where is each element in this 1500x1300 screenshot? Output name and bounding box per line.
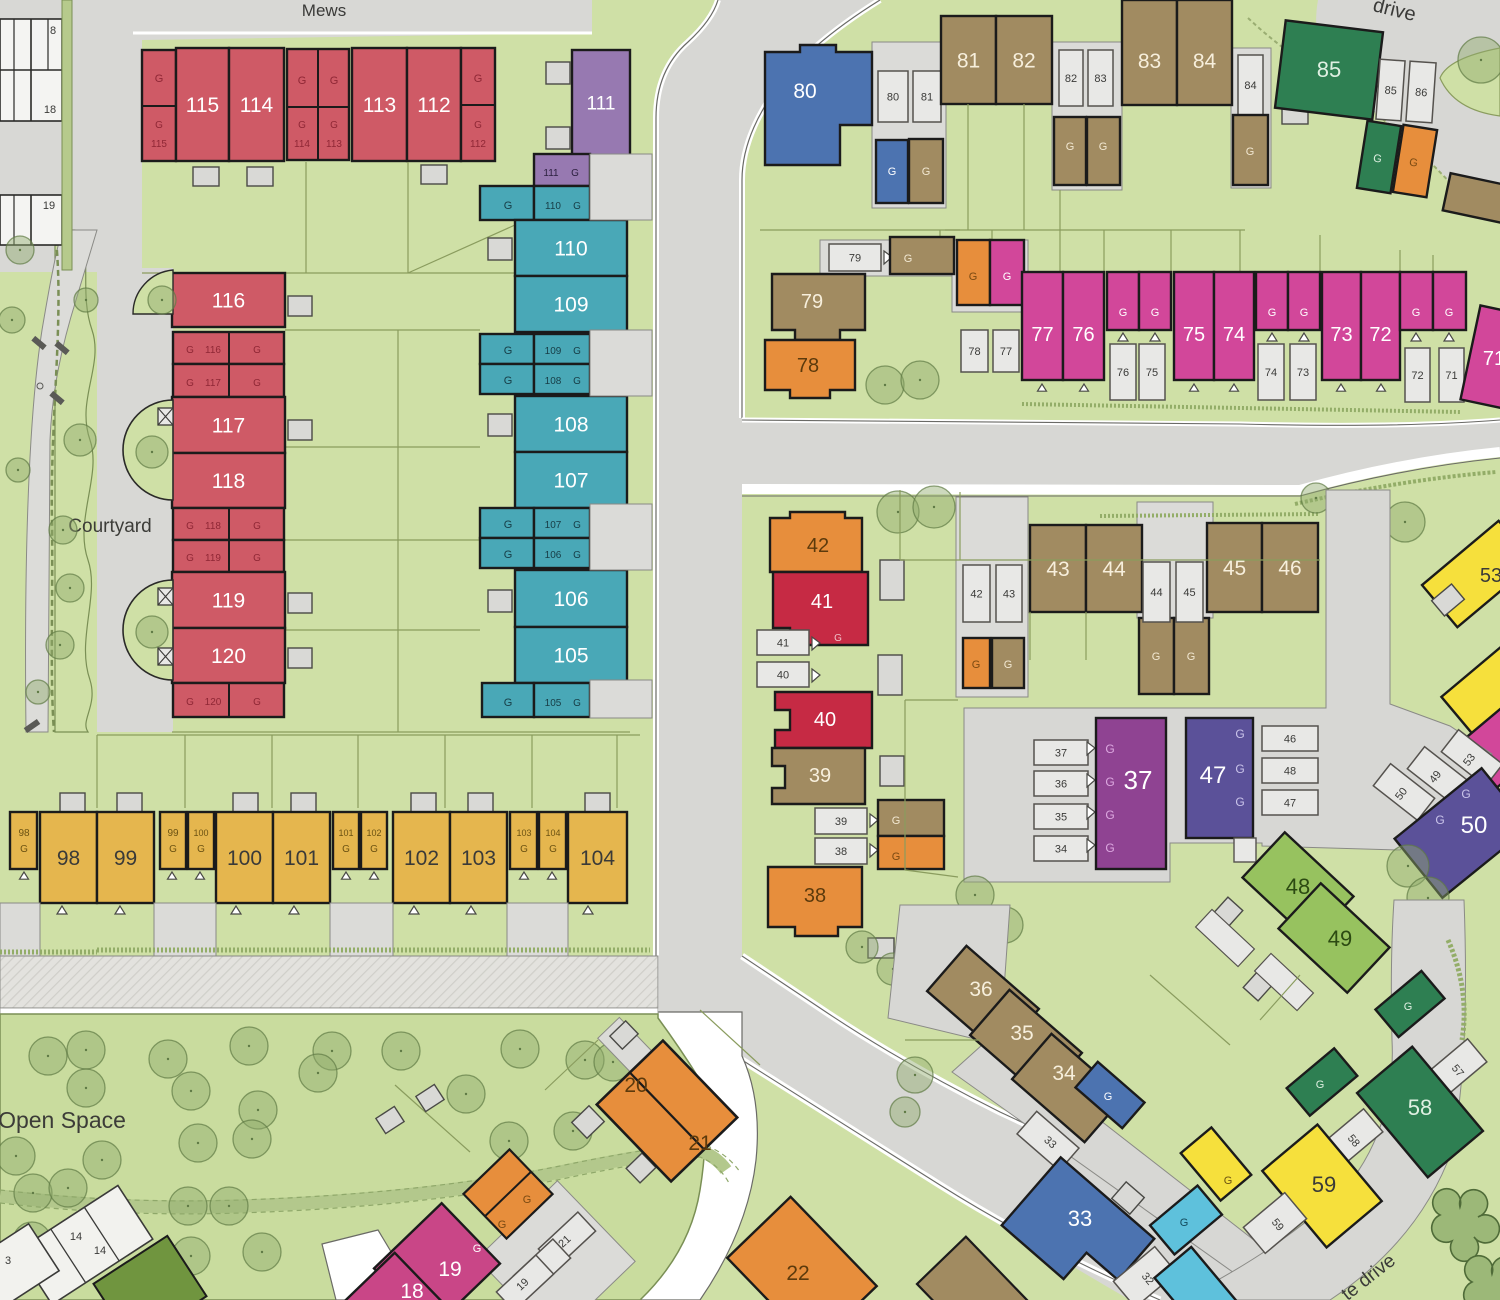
svg-text:103: 103 [516, 828, 531, 838]
svg-text:G: G [474, 73, 483, 85]
svg-text:21: 21 [688, 1132, 711, 1155]
svg-text:98: 98 [57, 847, 80, 870]
svg-text:G: G [197, 844, 205, 855]
svg-text:G: G [888, 166, 897, 178]
svg-text:G: G [1461, 787, 1470, 801]
svg-text:G: G [1004, 659, 1013, 671]
svg-text:113: 113 [363, 94, 396, 117]
svg-text:G: G [1235, 795, 1244, 809]
svg-text:77: 77 [1000, 346, 1012, 358]
svg-text:G: G [1105, 841, 1114, 855]
svg-text:G: G [969, 271, 978, 283]
svg-text:82: 82 [1065, 73, 1077, 85]
svg-text:G: G [1224, 1175, 1233, 1187]
svg-text:G: G [573, 376, 581, 387]
svg-text:72: 72 [1411, 370, 1423, 382]
svg-text:G: G [1152, 651, 1161, 663]
svg-text:G: G [298, 75, 307, 87]
svg-text:G: G [1066, 141, 1075, 153]
svg-text:102: 102 [366, 828, 381, 838]
svg-text:G: G [504, 375, 513, 387]
svg-text:G: G [330, 120, 338, 131]
svg-text:73: 73 [1297, 367, 1309, 379]
svg-text:G: G [549, 844, 557, 855]
svg-text:99: 99 [114, 847, 137, 870]
svg-text:G: G [1105, 775, 1114, 789]
svg-text:78: 78 [797, 355, 819, 377]
svg-text:22: 22 [786, 1262, 809, 1285]
svg-text:G: G [573, 550, 581, 561]
svg-text:105: 105 [553, 645, 588, 668]
svg-text:35: 35 [1055, 811, 1067, 823]
svg-text:G: G [573, 201, 581, 212]
svg-text:G: G [1235, 762, 1244, 776]
svg-text:73: 73 [1330, 324, 1352, 346]
svg-text:18: 18 [400, 1280, 423, 1300]
svg-text:38: 38 [835, 846, 847, 858]
svg-text:43: 43 [1003, 588, 1015, 600]
svg-text:39: 39 [835, 816, 847, 828]
svg-text:G: G [370, 844, 378, 855]
svg-text:G: G [504, 345, 513, 357]
svg-text:G: G [1445, 307, 1454, 319]
svg-text:100: 100 [227, 847, 262, 870]
svg-text:37: 37 [1124, 765, 1153, 795]
svg-text:G: G [1268, 307, 1277, 319]
svg-text:19: 19 [438, 1258, 461, 1281]
svg-text:38: 38 [804, 885, 826, 907]
svg-text:G: G [504, 200, 513, 212]
svg-text:85: 85 [1384, 85, 1397, 98]
svg-text:G: G [1151, 307, 1160, 319]
svg-text:G: G [20, 844, 28, 855]
svg-text:G: G [330, 75, 339, 87]
svg-text:98: 98 [18, 828, 30, 839]
svg-text:112: 112 [417, 94, 450, 117]
svg-text:G: G [186, 378, 194, 389]
svg-text:G: G [504, 549, 513, 561]
svg-text:75: 75 [1146, 367, 1158, 379]
svg-text:G: G [1180, 1217, 1189, 1229]
svg-text:G: G [573, 520, 581, 531]
svg-text:G: G [892, 851, 901, 863]
svg-text:79: 79 [849, 252, 861, 264]
svg-text:46: 46 [1284, 733, 1296, 745]
svg-text:113: 113 [326, 139, 342, 150]
svg-text:74: 74 [1223, 324, 1245, 346]
svg-text:G: G [155, 120, 163, 131]
svg-text:83: 83 [1138, 50, 1161, 73]
svg-text:79: 79 [801, 291, 823, 313]
svg-text:40: 40 [814, 709, 836, 731]
svg-text:G: G [904, 253, 913, 265]
svg-text:117: 117 [205, 378, 221, 389]
svg-text:Courtyard: Courtyard [68, 516, 151, 537]
svg-text:G: G [504, 519, 513, 531]
svg-text:111: 111 [543, 168, 559, 179]
svg-text:36: 36 [1055, 778, 1067, 790]
svg-text:48: 48 [1284, 765, 1296, 777]
svg-text:112: 112 [470, 139, 486, 150]
svg-text:81: 81 [957, 50, 980, 73]
svg-text:83: 83 [1094, 73, 1106, 85]
svg-text:G: G [253, 378, 261, 389]
svg-text:59: 59 [1312, 1172, 1336, 1197]
svg-text:G: G [1105, 742, 1114, 756]
svg-text:44: 44 [1102, 558, 1126, 581]
svg-text:110: 110 [545, 201, 561, 212]
svg-text:104: 104 [545, 828, 560, 838]
svg-text:G: G [834, 633, 842, 644]
svg-text:G: G [1316, 1079, 1325, 1091]
svg-text:109: 109 [553, 294, 588, 317]
svg-text:42: 42 [970, 588, 982, 600]
svg-text:G: G [1300, 307, 1309, 319]
svg-text:100: 100 [193, 828, 208, 838]
svg-text:80: 80 [887, 91, 899, 103]
svg-text:14: 14 [70, 1231, 82, 1243]
svg-text:G: G [1435, 813, 1444, 827]
svg-text:Open Space: Open Space [0, 1107, 126, 1133]
svg-text:118: 118 [212, 470, 245, 493]
svg-text:117: 117 [212, 415, 245, 438]
svg-text:8: 8 [50, 25, 56, 37]
svg-text:108: 108 [545, 376, 562, 387]
svg-text:39: 39 [809, 765, 831, 787]
svg-text:58: 58 [1408, 1095, 1432, 1120]
svg-text:36: 36 [969, 978, 992, 1001]
svg-text:120: 120 [205, 697, 222, 708]
svg-text:84: 84 [1193, 50, 1217, 73]
svg-text:114: 114 [294, 139, 310, 150]
svg-text:G: G [474, 120, 482, 131]
svg-text:119: 119 [205, 553, 221, 564]
svg-text:G: G [1246, 146, 1255, 158]
svg-text:101: 101 [284, 847, 319, 870]
svg-text:72: 72 [1369, 324, 1391, 346]
svg-text:84: 84 [1244, 80, 1256, 92]
svg-text:99: 99 [167, 828, 179, 839]
svg-text:120: 120 [211, 645, 246, 668]
svg-text:G: G [1119, 307, 1128, 319]
svg-text:G: G [473, 1243, 482, 1255]
svg-text:G: G [1412, 307, 1421, 319]
svg-text:G: G [186, 521, 194, 532]
svg-text:G: G [253, 553, 261, 564]
svg-text:80: 80 [793, 80, 816, 103]
svg-text:101: 101 [338, 828, 353, 838]
svg-text:41: 41 [811, 591, 833, 613]
svg-text:85: 85 [1317, 57, 1341, 82]
svg-text:G: G [1187, 651, 1196, 663]
svg-text:49: 49 [1328, 926, 1352, 951]
svg-text:G: G [1105, 808, 1114, 822]
svg-text:3: 3 [5, 1255, 11, 1267]
svg-text:34: 34 [1052, 1062, 1076, 1085]
svg-text:G: G [1099, 141, 1108, 153]
svg-text:19: 19 [43, 200, 55, 212]
svg-text:105: 105 [545, 698, 562, 709]
svg-text:G: G [253, 521, 261, 532]
svg-text:G: G [155, 73, 164, 85]
svg-text:G: G [573, 698, 581, 709]
svg-text:G: G [1404, 1001, 1413, 1013]
svg-text:111: 111 [587, 93, 616, 114]
svg-text:103: 103 [461, 847, 496, 870]
svg-text:14: 14 [94, 1245, 106, 1257]
svg-text:106: 106 [553, 588, 588, 611]
svg-text:81: 81 [921, 91, 933, 103]
svg-text:41: 41 [777, 637, 789, 649]
svg-text:G: G [1104, 1091, 1113, 1103]
svg-text:50: 50 [1461, 812, 1488, 839]
svg-text:74: 74 [1265, 367, 1277, 379]
svg-text:G: G [1003, 271, 1012, 283]
svg-text:114: 114 [240, 94, 274, 117]
svg-text:76: 76 [1117, 367, 1129, 379]
svg-text:G: G [342, 844, 350, 855]
svg-text:108: 108 [553, 414, 588, 437]
svg-text:G: G [520, 844, 528, 855]
svg-text:102: 102 [404, 847, 439, 870]
svg-text:115: 115 [151, 139, 167, 150]
svg-text:76: 76 [1072, 324, 1094, 346]
svg-text:35: 35 [1010, 1022, 1033, 1045]
svg-text:115: 115 [186, 94, 219, 117]
svg-text:42: 42 [807, 535, 829, 557]
svg-text:Mews: Mews [302, 1, 346, 20]
svg-text:G: G [253, 345, 261, 356]
svg-text:109: 109 [545, 346, 562, 357]
svg-text:47: 47 [1284, 797, 1296, 809]
svg-text:116: 116 [212, 290, 245, 313]
svg-text:34: 34 [1055, 843, 1067, 855]
svg-text:G: G [186, 345, 194, 356]
svg-text:107: 107 [545, 520, 562, 531]
svg-text:44: 44 [1150, 587, 1162, 599]
svg-text:116: 116 [205, 345, 221, 356]
svg-text:71: 71 [1483, 348, 1500, 370]
svg-text:G: G [571, 168, 579, 179]
svg-text:110: 110 [554, 238, 587, 261]
svg-text:G: G [298, 120, 306, 131]
svg-text:82: 82 [1012, 50, 1035, 73]
svg-text:119: 119 [212, 590, 245, 613]
svg-text:40: 40 [777, 669, 789, 681]
svg-text:G: G [504, 697, 513, 709]
svg-text:G: G [972, 659, 981, 671]
svg-text:106: 106 [545, 550, 562, 561]
svg-text:G: G [186, 553, 194, 564]
svg-text:G: G [892, 815, 901, 827]
svg-text:71: 71 [1445, 370, 1457, 382]
svg-text:20: 20 [624, 1074, 647, 1097]
svg-text:48: 48 [1286, 874, 1310, 899]
svg-text:53: 53 [1480, 565, 1500, 587]
svg-text:G: G [922, 166, 931, 178]
svg-text:37: 37 [1055, 747, 1067, 759]
svg-text:G: G [169, 844, 177, 855]
svg-text:45: 45 [1183, 587, 1195, 599]
svg-text:G: G [573, 346, 581, 357]
svg-text:75: 75 [1183, 324, 1205, 346]
svg-text:107: 107 [553, 470, 588, 493]
svg-text:78: 78 [968, 346, 980, 358]
svg-text:77: 77 [1031, 324, 1053, 346]
svg-text:G: G [498, 1219, 507, 1231]
svg-text:118: 118 [205, 521, 221, 532]
svg-text:18: 18 [44, 104, 56, 116]
svg-text:G: G [1235, 727, 1244, 741]
svg-text:G: G [253, 697, 261, 708]
svg-text:G: G [523, 1194, 532, 1206]
svg-text:G: G [186, 697, 194, 708]
svg-text:86: 86 [1415, 87, 1428, 100]
svg-text:43: 43 [1046, 558, 1069, 581]
svg-text:104: 104 [580, 847, 615, 870]
svg-text:33: 33 [1068, 1206, 1092, 1231]
svg-text:47: 47 [1200, 762, 1227, 789]
